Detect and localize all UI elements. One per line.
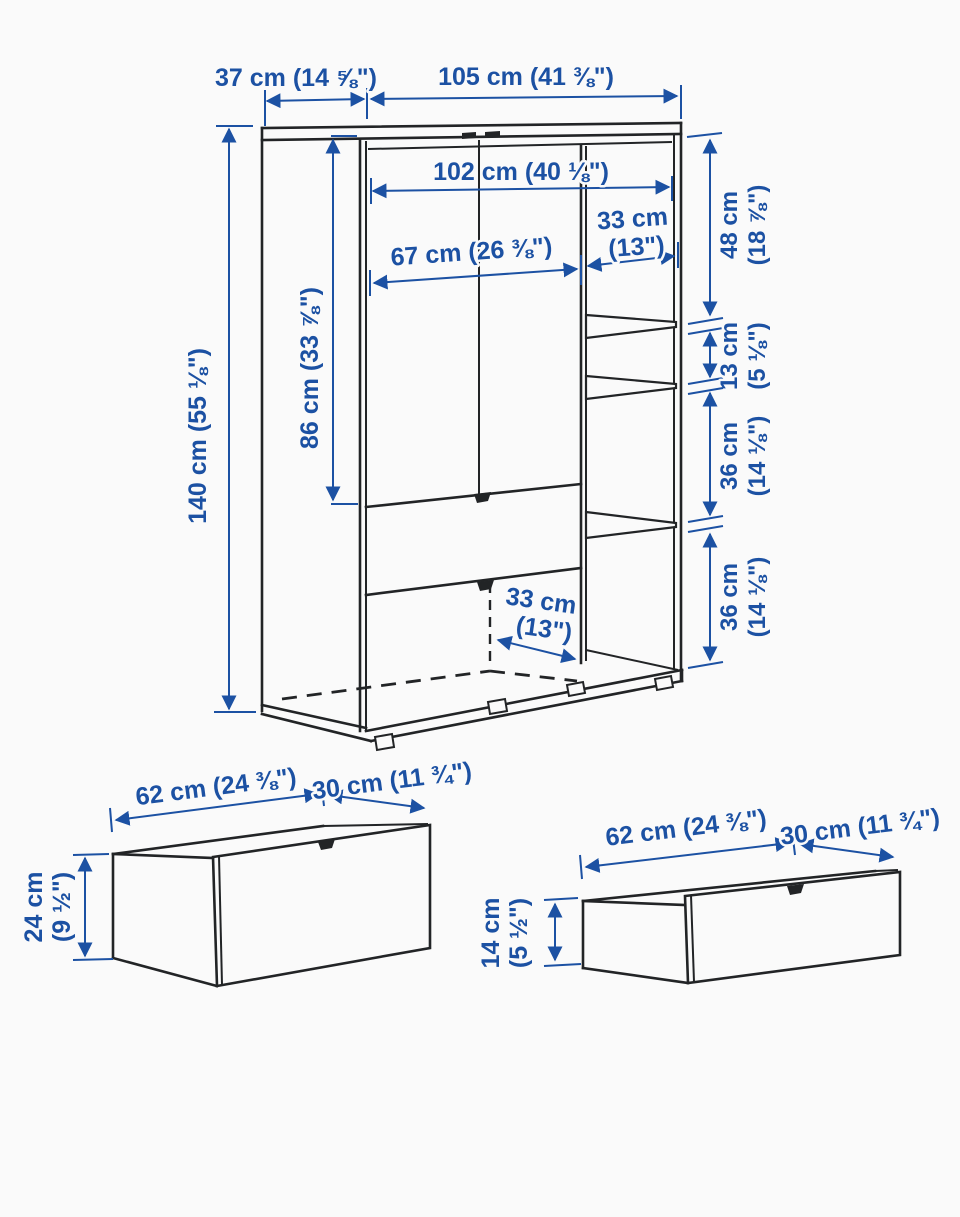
small-drawer-height-label-1: 14 cm xyxy=(477,898,505,969)
foot xyxy=(488,699,507,714)
spacing-13-label-2: (5 ⅛") xyxy=(744,322,771,389)
large-drawer-width-label: 62 cm (24 ⅜") xyxy=(134,763,298,811)
hinge-mark xyxy=(485,131,500,138)
large-drawer-drawing xyxy=(113,824,430,986)
shelf-3 xyxy=(586,512,676,538)
small-drawer-width-label: 62 cm (24 ⅜") xyxy=(604,804,768,852)
spacing-36b-label-1: 36 cm xyxy=(716,563,743,631)
drawer-handle-notch xyxy=(474,492,491,503)
spacing-36b-label-2: (14 ⅛") xyxy=(744,557,771,638)
small-drawer-height-label-2: (5 ½") xyxy=(505,898,533,968)
hidden-back-edge xyxy=(282,671,490,699)
large-drawer-depth-label: 30 cm (11 ¾") xyxy=(311,757,474,805)
spacing-36a-label-2: (14 ⅛") xyxy=(744,416,771,497)
spacing-36a-label-1: 36 cm xyxy=(716,422,743,490)
large-drawer-height-label-2: (9 ½") xyxy=(48,872,76,942)
inner-width-label: 102 cm (40 ⅛") xyxy=(433,158,609,186)
door-height-label: 86 cm (33 ⅞") xyxy=(296,287,324,449)
spacing-13-label-1: 13 cm xyxy=(716,322,743,390)
dimension-diagram-page: 37 cm (14 ⅝") 105 cm (41 ⅜") 102 cm (40 … xyxy=(0,0,960,1217)
foot xyxy=(655,676,673,690)
foot xyxy=(567,682,585,696)
small-drawer-depth-label: 30 cm (11 ¾") xyxy=(779,803,942,850)
small-drawer-drawing xyxy=(583,870,900,983)
small-drawer-dimensions: 62 cm (24 ⅜") 30 cm (11 ¾") 14 cm (5 ½") xyxy=(477,803,941,968)
dimension-diagram: 37 cm (14 ⅝") 105 cm (41 ⅜") 102 cm (40 … xyxy=(0,0,960,1217)
large-drawer-dimensions: 62 cm (24 ⅜") 30 cm (11 ¾") 24 cm (9 ½") xyxy=(20,757,473,960)
width-top-label: 105 cm (41 ⅜") xyxy=(438,63,614,91)
shelf-2 xyxy=(586,376,676,399)
right-compartment-label-2: (13") xyxy=(607,231,665,263)
foot xyxy=(375,734,394,750)
height-label: 140 cm (55 ⅛") xyxy=(184,348,212,524)
hinge-mark xyxy=(462,132,476,139)
large-drawer-height-label-1: 24 cm xyxy=(20,872,48,943)
shelf-1 xyxy=(586,315,676,338)
spacing-48-label-1: 48 cm xyxy=(716,191,743,259)
wardrobe-dimensions: 37 cm (14 ⅝") 105 cm (41 ⅜") 102 cm (40 … xyxy=(184,63,771,712)
drawer-handle-notch xyxy=(787,884,804,895)
spacing-48-label-2: (18 ⅞") xyxy=(744,185,771,266)
left-compartment-label: 67 cm (26 ⅜") xyxy=(390,232,554,271)
hidden-back-edge xyxy=(490,671,577,681)
depth-top-label: 37 cm (14 ⅝") xyxy=(215,64,377,92)
